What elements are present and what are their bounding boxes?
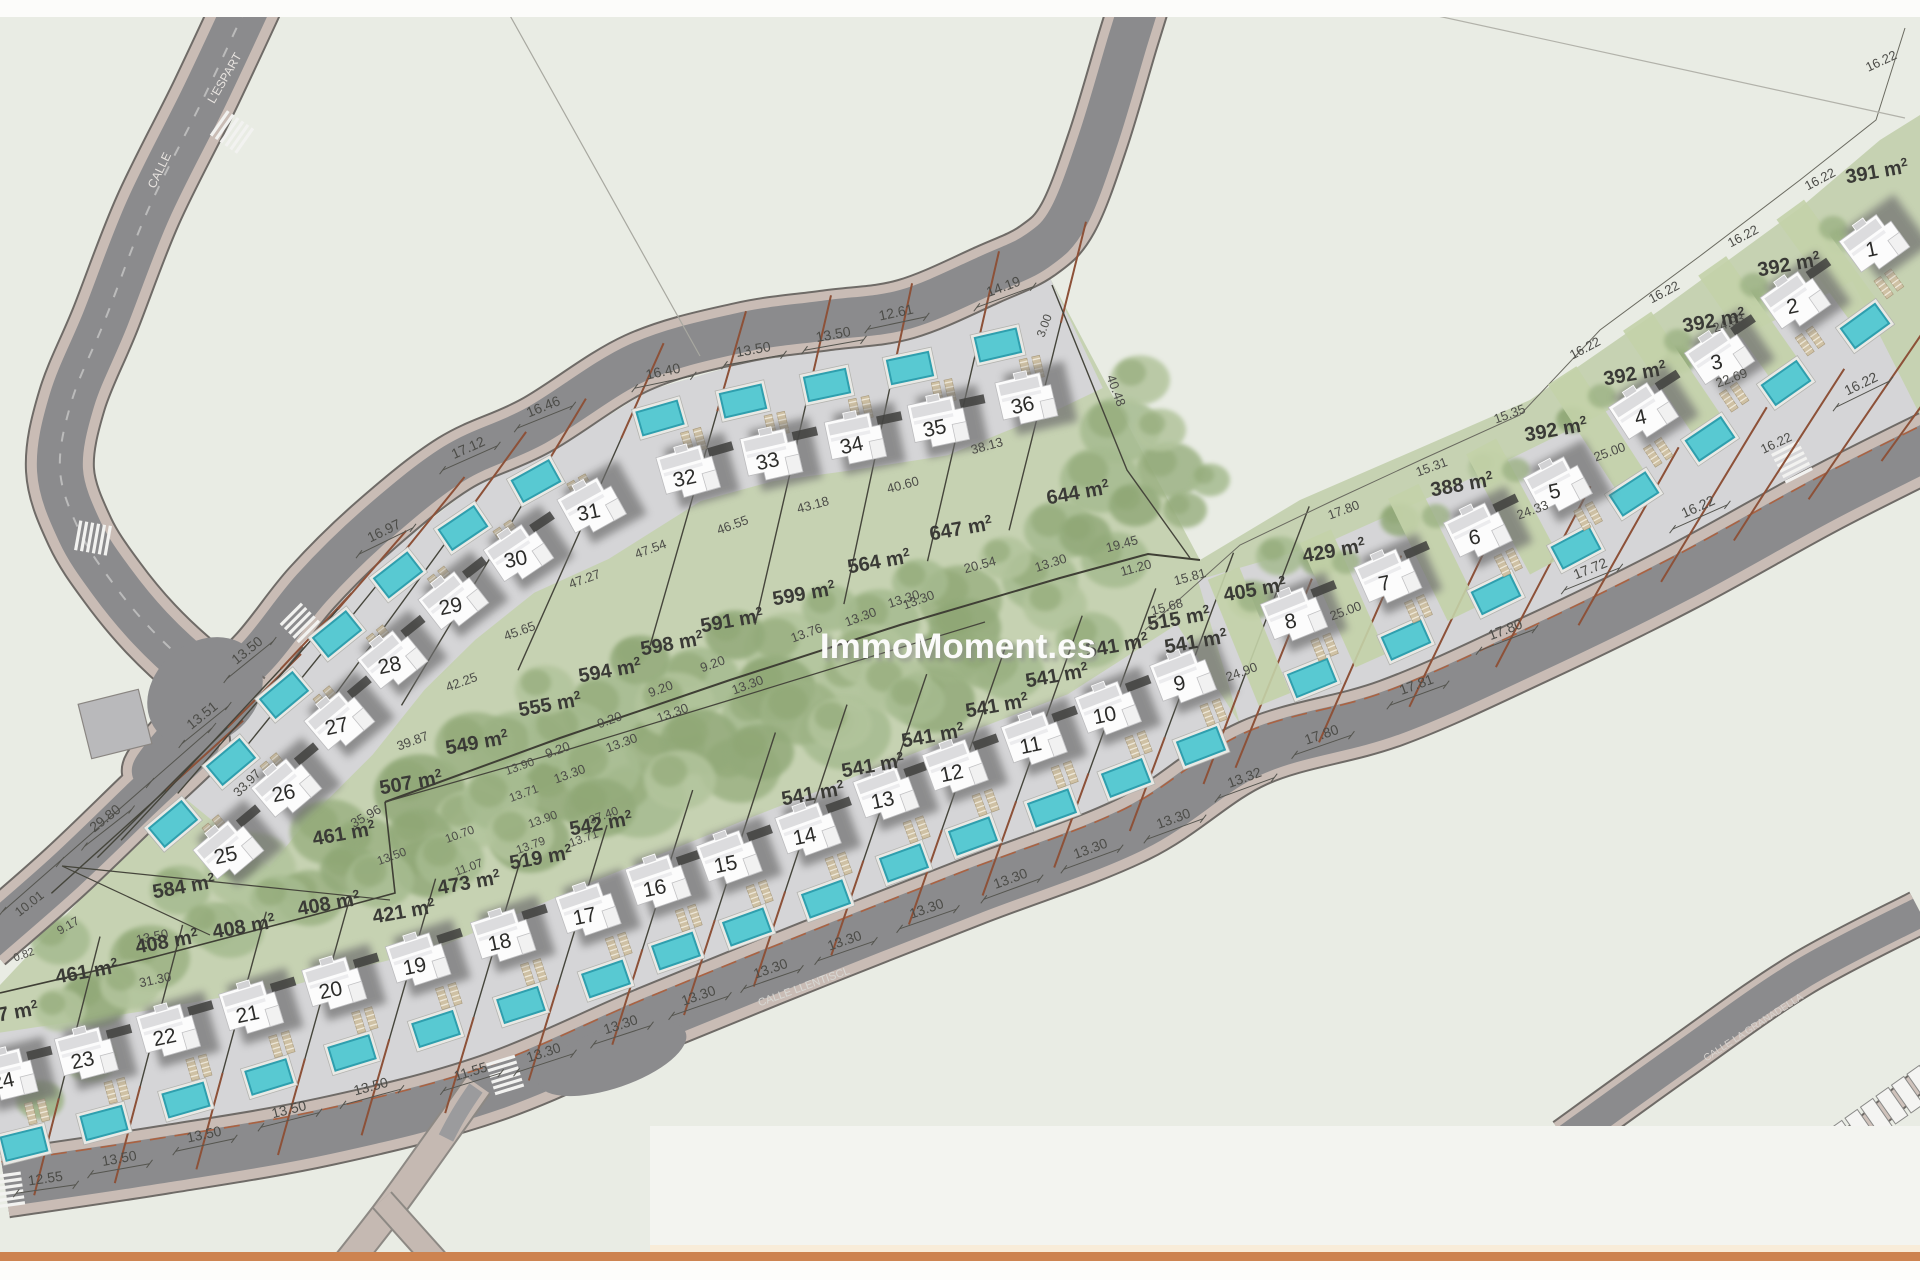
svg-text:26: 26 xyxy=(270,780,298,807)
svg-text:15: 15 xyxy=(712,851,740,878)
svg-text:29: 29 xyxy=(437,593,465,620)
svg-text:10: 10 xyxy=(1091,702,1119,729)
svg-text:32: 32 xyxy=(671,465,699,492)
svg-text:31: 31 xyxy=(575,499,603,526)
svg-text:36: 36 xyxy=(1009,392,1037,419)
svg-text:27: 27 xyxy=(323,713,351,740)
svg-text:20: 20 xyxy=(317,977,345,1004)
svg-text:33: 33 xyxy=(754,448,782,475)
svg-text:23: 23 xyxy=(69,1047,97,1074)
svg-text:21: 21 xyxy=(234,1001,262,1028)
svg-text:ImmoMoment.es: ImmoMoment.es xyxy=(820,627,1096,666)
svg-text:16: 16 xyxy=(641,875,669,902)
svg-text:12: 12 xyxy=(938,760,966,787)
svg-text:30: 30 xyxy=(502,546,530,573)
svg-text:35: 35 xyxy=(921,415,949,442)
svg-text:19: 19 xyxy=(401,953,429,980)
svg-text:28: 28 xyxy=(376,652,404,679)
svg-text:18: 18 xyxy=(486,929,514,956)
svg-text:22: 22 xyxy=(151,1024,179,1051)
svg-text:13: 13 xyxy=(869,787,897,814)
svg-text:25: 25 xyxy=(212,842,240,869)
svg-text:17: 17 xyxy=(571,903,599,930)
